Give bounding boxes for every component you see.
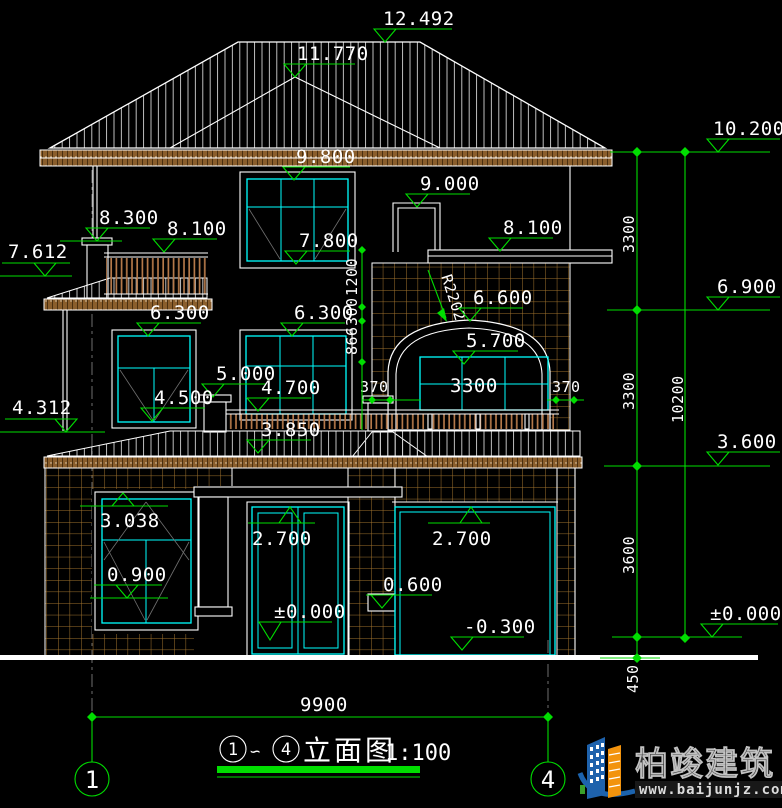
entry-door: [247, 502, 349, 656]
svg-text:3.850: 3.850: [261, 419, 321, 441]
svg-text:11.770: 11.770: [297, 43, 369, 65]
elevation-marker-window2-left-sill: 4.500: [141, 387, 214, 421]
elevation-marker-floor3: 6.900: [607, 276, 780, 310]
elevation-marker-ridge: 12.492: [374, 8, 455, 42]
logo-website[interactable]: www.baijunjz.com: [639, 782, 782, 798]
title-to-axis: 4: [281, 740, 291, 760]
elevation-marker-floor2: 3.600: [604, 431, 780, 466]
svg-text:7.800: 7.800: [299, 230, 359, 252]
title-block: 1 ∽ 4 立面图 1:100: [217, 734, 451, 777]
window-3f: [240, 172, 355, 268]
elevation-canvas: R2202: [0, 0, 782, 808]
dim-arch-pier-left: 370: [360, 378, 389, 396]
svg-text:2.700: 2.700: [252, 528, 312, 550]
dim-right-chains: 3300 3300 3600 450 10200: [600, 147, 690, 693]
svg-text:4.700: 4.700: [261, 377, 321, 399]
svg-text:8.100: 8.100: [503, 217, 563, 239]
dim-floor1-height: 3600: [620, 536, 638, 574]
dim-total-width-value: 9900: [300, 694, 348, 716]
dim-wall-seg-mid: 300: [343, 297, 361, 326]
elevation-value: 12.492: [383, 8, 455, 30]
logo-company-name: 柏竣建筑: [635, 744, 775, 783]
svg-text:3.600: 3.600: [717, 431, 777, 453]
axis-right-number: 4: [541, 766, 555, 794]
logo[interactable]: 柏竣建筑 www.baijunjz.com: [580, 737, 782, 799]
svg-text:9.000: 9.000: [420, 173, 480, 195]
title-tilde: ∽: [250, 742, 261, 762]
axis-left-number: 1: [85, 766, 99, 794]
svg-text:6.600: 6.600: [473, 287, 533, 309]
elevation-marker-canopy3: 7.612: [0, 241, 72, 276]
svg-text:8.100: 8.100: [167, 218, 227, 240]
logo-buildings-icon: [580, 737, 635, 799]
svg-text:6.900: 6.900: [717, 276, 777, 298]
svg-text:0.900: 0.900: [107, 564, 167, 586]
elevation-marker-stair-door: 9.000: [406, 173, 480, 207]
cad-elevation-drawing: R2202: [0, 0, 782, 808]
title-underline-thick: [217, 766, 420, 773]
dim-floor2-height: 3300: [620, 372, 638, 410]
svg-text:8.300: 8.300: [99, 207, 159, 229]
title-from-axis: 1: [228, 740, 238, 760]
dim-wall-seg-top: 1200: [343, 258, 361, 296]
elevation-marker-door-floor: ±0.000: [258, 601, 346, 640]
balcony3-railing: [104, 253, 208, 294]
axis-bubble-left: 1: [75, 762, 109, 796]
dim-arch-width: 3300: [450, 375, 498, 397]
svg-text:4.312: 4.312: [12, 397, 72, 419]
terrace-parapet: [428, 250, 612, 263]
dim-wall-seg-bottom: 866: [343, 326, 361, 355]
dim-floor3-height: 3300: [620, 215, 638, 253]
title-scale: 1:100: [385, 741, 451, 766]
svg-text:3.038: 3.038: [100, 510, 160, 532]
elevation-marker-slab2: 4.312: [0, 397, 105, 432]
dim-plinth: 450: [624, 664, 642, 693]
svg-text:2.700: 2.700: [432, 528, 492, 550]
elevation-marker-garage-head: 2.700: [428, 507, 492, 550]
dim-total-height: 10200: [669, 375, 687, 423]
stair-door: [393, 203, 440, 252]
svg-text:4.500: 4.500: [154, 387, 214, 409]
svg-text:±0.000: ±0.000: [274, 601, 346, 623]
elevation-marker-eave-right: 10.200: [610, 118, 782, 152]
elevation-marker-left-parapet: 8.300: [60, 207, 159, 241]
svg-text:10.200: 10.200: [713, 118, 782, 140]
window-2f-left: [112, 330, 196, 428]
svg-text:5.700: 5.700: [466, 330, 526, 352]
elevation-marker-terrace-parapet: 8.100: [489, 217, 563, 251]
svg-text:0.600: 0.600: [383, 574, 443, 596]
svg-text:9.800: 9.800: [296, 146, 356, 168]
svg-text:7.612: 7.612: [8, 241, 68, 263]
elevation-marker-garage-floor: -0.300: [451, 616, 536, 650]
svg-text:±0.000: ±0.000: [710, 603, 782, 625]
svg-text:6.300: 6.300: [150, 302, 210, 324]
axis-bubble-right: 4: [531, 762, 565, 796]
title-name: 立面图: [303, 734, 396, 767]
svg-text:-0.300: -0.300: [464, 616, 536, 638]
elevation-marker-balcony3: 8.100: [153, 218, 227, 252]
dim-arch-pier-right: 370: [552, 378, 581, 396]
